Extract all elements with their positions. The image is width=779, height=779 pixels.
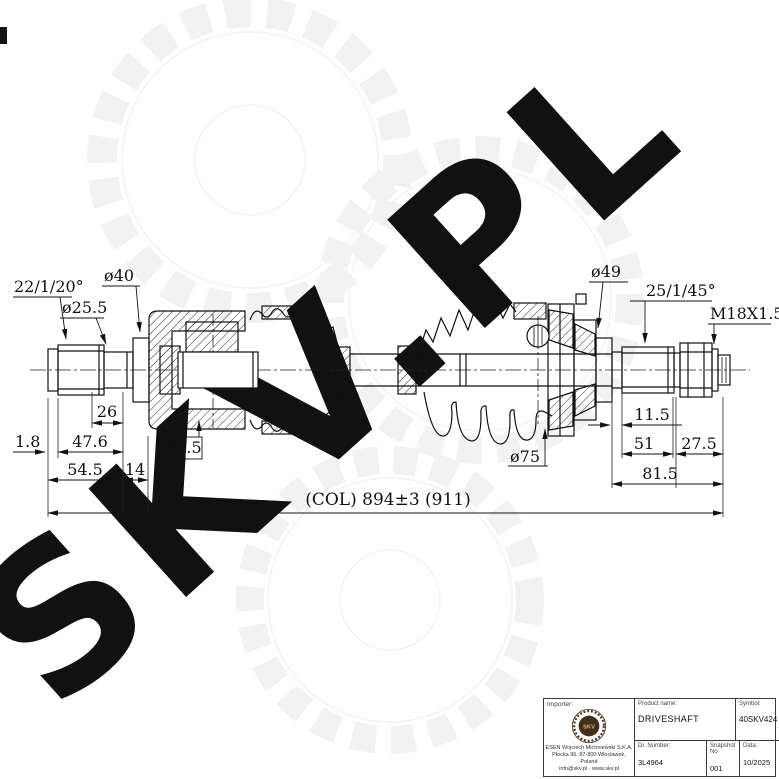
sheet-number-value: 001	[710, 764, 736, 773]
dim-thread: M18X1.5	[710, 304, 779, 323]
symbol-value: 40SKV424	[739, 715, 777, 724]
technical-drawing-page: SKV.PL	[0, 0, 779, 779]
dim-len-47-6: 47.6	[72, 432, 108, 451]
dim-dia-40: ø40	[104, 266, 134, 285]
address-line-2: Płocka 96, 87-800 Włocławek, Poland	[544, 752, 634, 766]
symbol-cell: Symbol: 40SKV424	[735, 699, 779, 740]
address-line-1: ESEN Wojciech Michniewski S.K.A.	[544, 745, 634, 752]
dim-len-81-5: 81.5	[642, 464, 678, 483]
dim-overall-length: (COL) 894±3 (911)	[305, 490, 471, 510]
dim-len-26: 26	[97, 402, 117, 421]
importer-address: ESEN Wojciech Michniewski S.K.A. Płocka …	[544, 745, 634, 774]
date-label: Data:	[743, 743, 777, 749]
skv-logo-stamp: SKV	[571, 708, 607, 744]
dim-chamfer-left: 22/1/20°	[14, 277, 84, 296]
dim-len-1-8: 1.8	[15, 432, 40, 451]
title-block-row-2: Dr. Number: 3L4964 Snapshot No 001 Data:…	[635, 741, 779, 776]
sheet-number-label: Snapshot No	[710, 743, 736, 755]
driveshaft-drawing: SKV.PL	[0, 0, 779, 779]
dim-len-51: 51	[634, 434, 654, 453]
dim-len-11-5: 11.5	[634, 405, 670, 424]
dim-len-27-5: 27.5	[681, 434, 717, 453]
address-line-3: info@skv.pl · www.skv.pl	[544, 766, 634, 773]
scan-artifact-mark	[0, 27, 7, 44]
importer-label: Importer:	[547, 701, 573, 708]
drawing-number-cell: Dr. Number: 3L4964	[635, 741, 706, 776]
date-cell: Data: 10/2025	[739, 741, 779, 776]
dim-dia-67-5: ø67.5	[156, 438, 201, 457]
sheet-number-cell: Snapshot No 001	[706, 741, 739, 776]
drawing-number-value: 3L4964	[638, 758, 703, 767]
product-name-label: Product name:	[638, 701, 732, 707]
product-name-value: DRIVESHAFT	[638, 714, 732, 724]
importer-cell: Importer: SKV ESEN Wojciech Michniewski …	[544, 699, 635, 776]
title-block-fields: Product name: DRIVESHAFT Symbol: 40SKV42…	[635, 699, 779, 776]
drawing-number-label: Dr. Number:	[638, 743, 703, 749]
product-name-cell: Product name: DRIVESHAFT	[635, 699, 735, 740]
dim-dia-75: ø75	[510, 447, 540, 466]
dim-dia-49: ø49	[591, 262, 621, 281]
title-block: Importer: SKV ESEN Wojciech Michniewski …	[543, 698, 776, 777]
logo-text: SKV	[583, 724, 595, 730]
dim-len-54-5: 54.5	[67, 460, 103, 479]
date-value: 10/2025	[743, 758, 777, 767]
dim-dia-25-5: ø25.5	[62, 298, 107, 317]
dim-chamfer-right: 25/1/45°	[646, 281, 716, 300]
dim-len-14: 14	[125, 460, 145, 479]
title-block-row-1: Product name: DRIVESHAFT Symbol: 40SKV42…	[635, 699, 779, 741]
symbol-label: Symbol:	[739, 701, 777, 707]
